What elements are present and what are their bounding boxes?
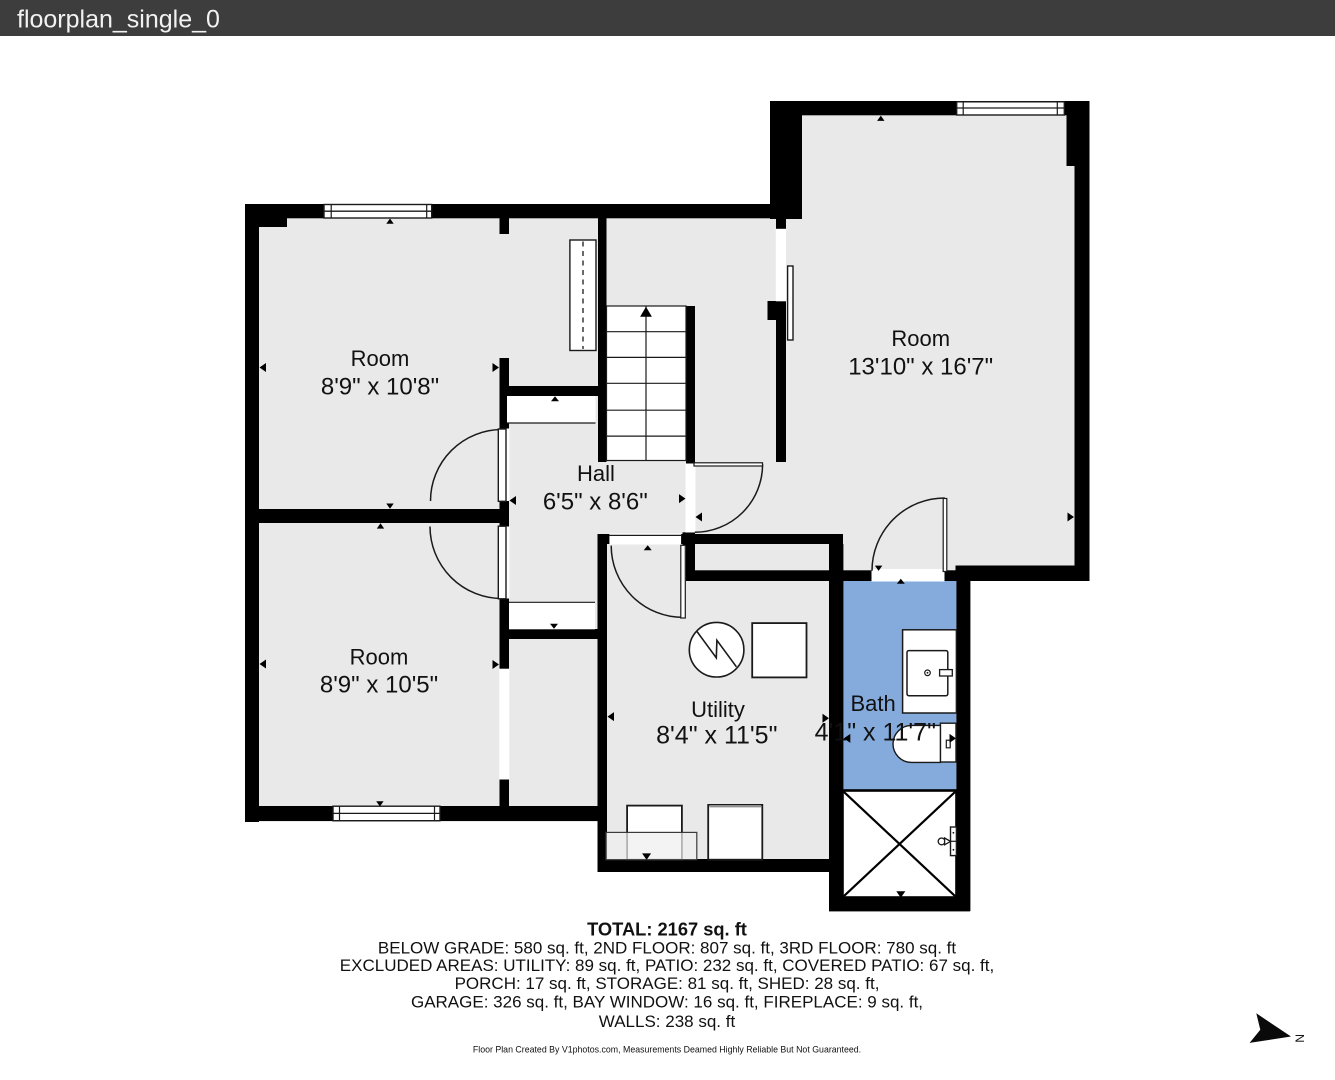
svg-text:EXCLUDED AREAS: UTILITY: 89 sq: EXCLUDED AREAS: UTILITY: 89 sq. ft, PATI… xyxy=(340,956,994,975)
svg-text:4'1" x 11'7": 4'1" x 11'7" xyxy=(815,718,936,746)
svg-text:PORCH: 17 sq. ft, STORAGE: 81: PORCH: 17 sq. ft, STORAGE: 81 sq. ft, SH… xyxy=(455,974,880,993)
svg-text:floorplan_single_0: floorplan_single_0 xyxy=(17,6,220,34)
svg-text:Bath: Bath xyxy=(850,691,895,716)
svg-text:8'4" x 11'5": 8'4" x 11'5" xyxy=(656,722,777,750)
svg-text:8'9" x 10'5": 8'9" x 10'5" xyxy=(320,672,438,699)
svg-text:N: N xyxy=(1293,1034,1307,1043)
svg-text:Hall: Hall xyxy=(577,461,615,486)
svg-text:Room: Room xyxy=(891,326,950,351)
svg-text:WALLS: 238 sq. ft: WALLS: 238 sq. ft xyxy=(599,1012,736,1031)
svg-text:Room: Room xyxy=(351,346,410,371)
svg-text:8'9" x 10'8": 8'9" x 10'8" xyxy=(321,374,439,401)
svg-text:TOTAL: 2167 sq. ft: TOTAL: 2167 sq. ft xyxy=(587,919,747,940)
svg-text:BELOW GRADE: 580 sq. ft, 2ND F: BELOW GRADE: 580 sq. ft, 2ND FLOOR: 807 … xyxy=(378,938,956,957)
svg-text:Utility: Utility xyxy=(691,697,745,722)
svg-text:6'5" x 8'6": 6'5" x 8'6" xyxy=(543,488,648,515)
svg-text:Room: Room xyxy=(350,645,409,670)
svg-text:13'10" x 16'7": 13'10" x 16'7" xyxy=(848,353,993,380)
svg-text:GARAGE: 326 sq. ft, BAY WINDOW: GARAGE: 326 sq. ft, BAY WINDOW: 16 sq. f… xyxy=(411,993,923,1012)
svg-text:Floor Plan Created By V1photos: Floor Plan Created By V1photos.com, Meas… xyxy=(473,1045,861,1055)
